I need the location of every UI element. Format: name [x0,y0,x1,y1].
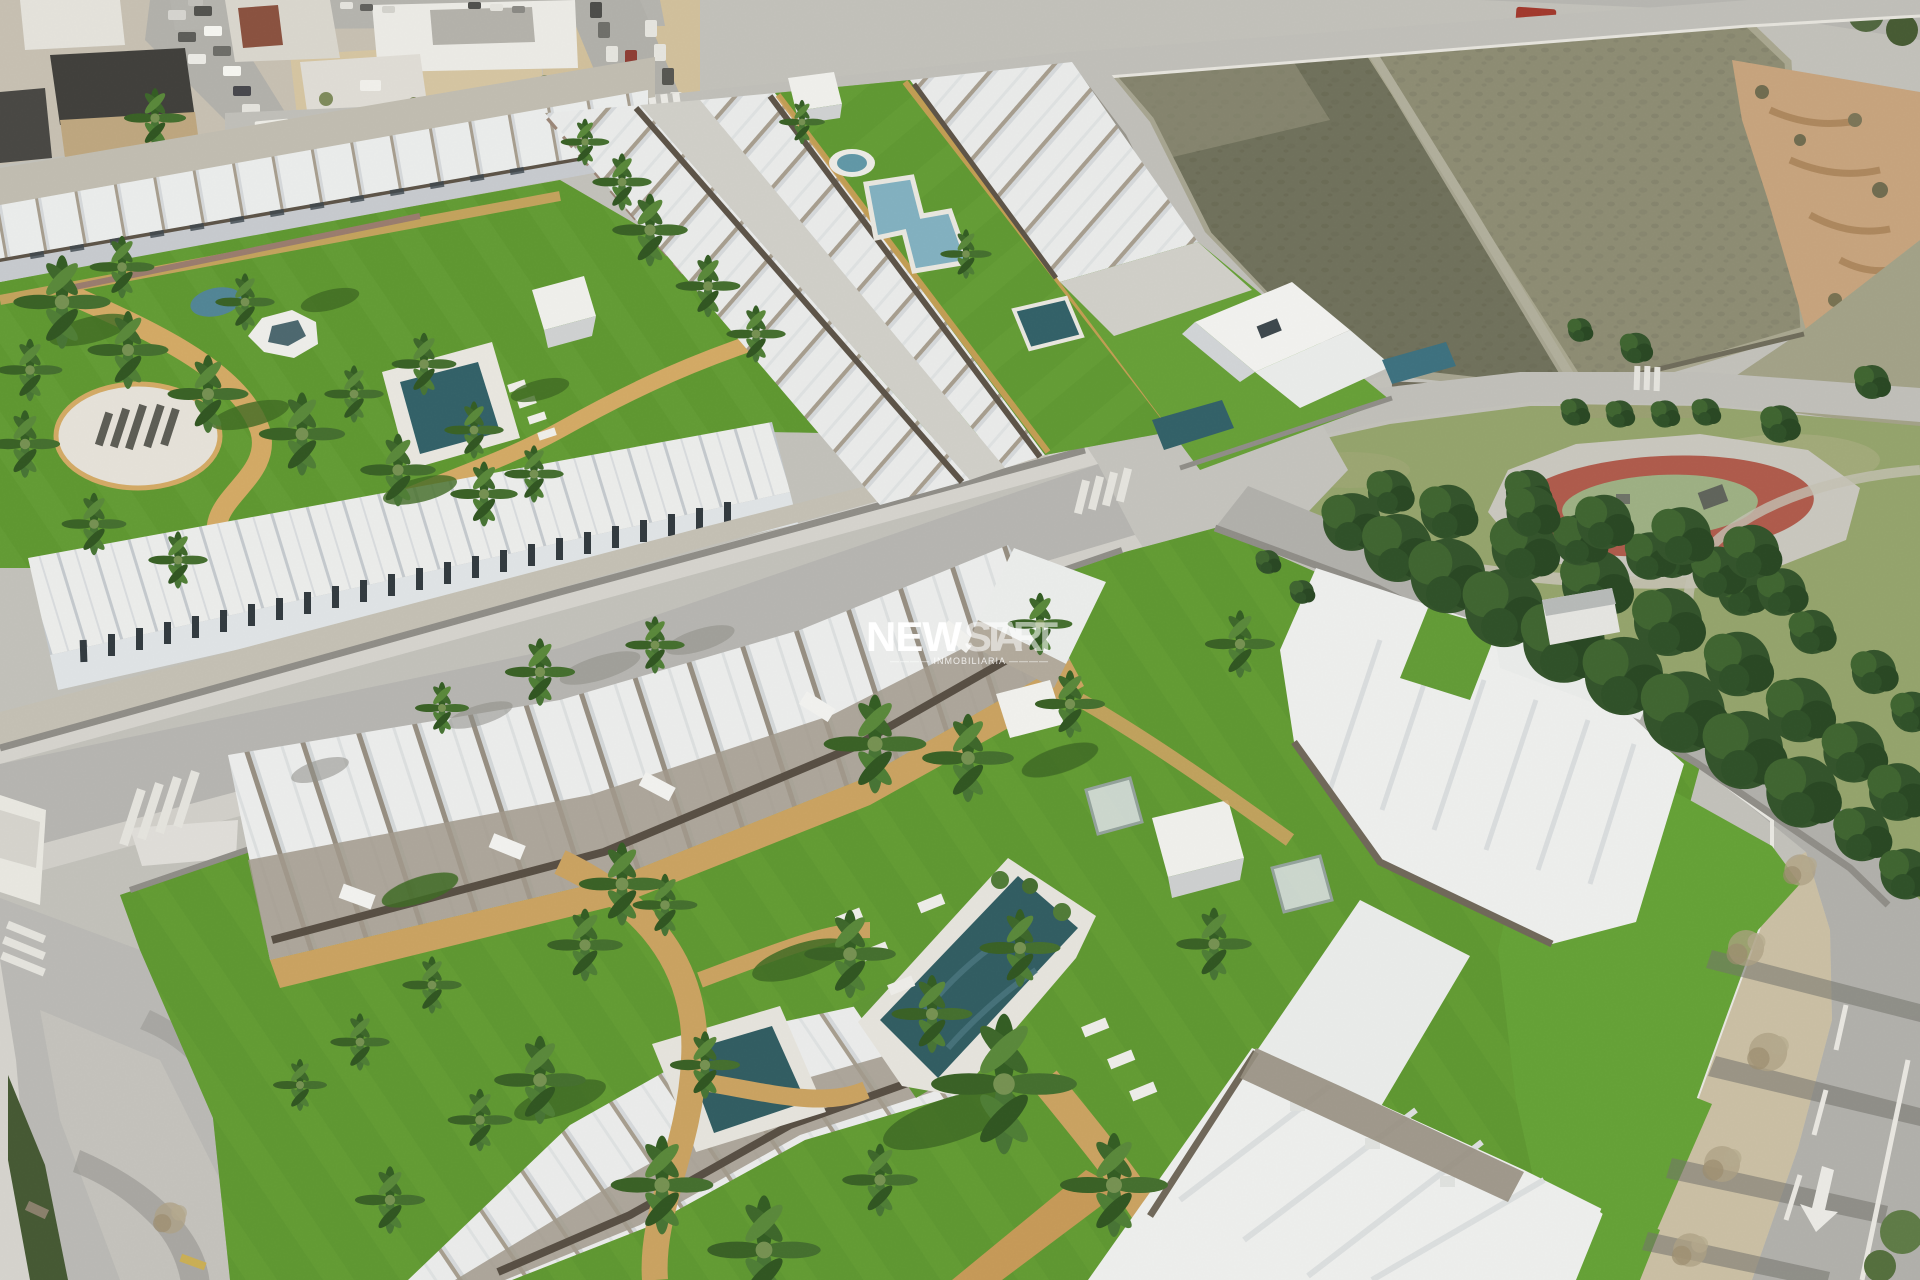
svg-text:———— INMOBILIARIA ————: ———— INMOBILIARIA ———— [890,656,1049,666]
svg-text:NEW: NEW [866,613,962,660]
svg-text:START: START [964,613,1058,660]
